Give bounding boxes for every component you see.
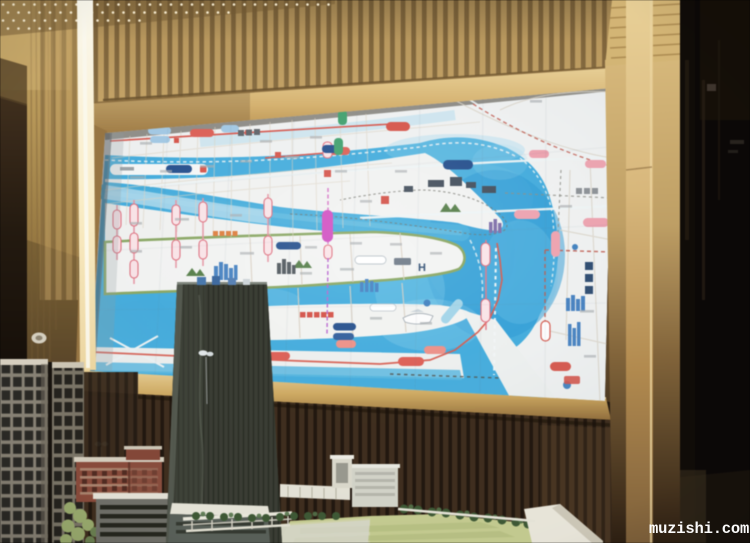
svg-text:muzishi.com: muzishi.com	[649, 520, 749, 538]
